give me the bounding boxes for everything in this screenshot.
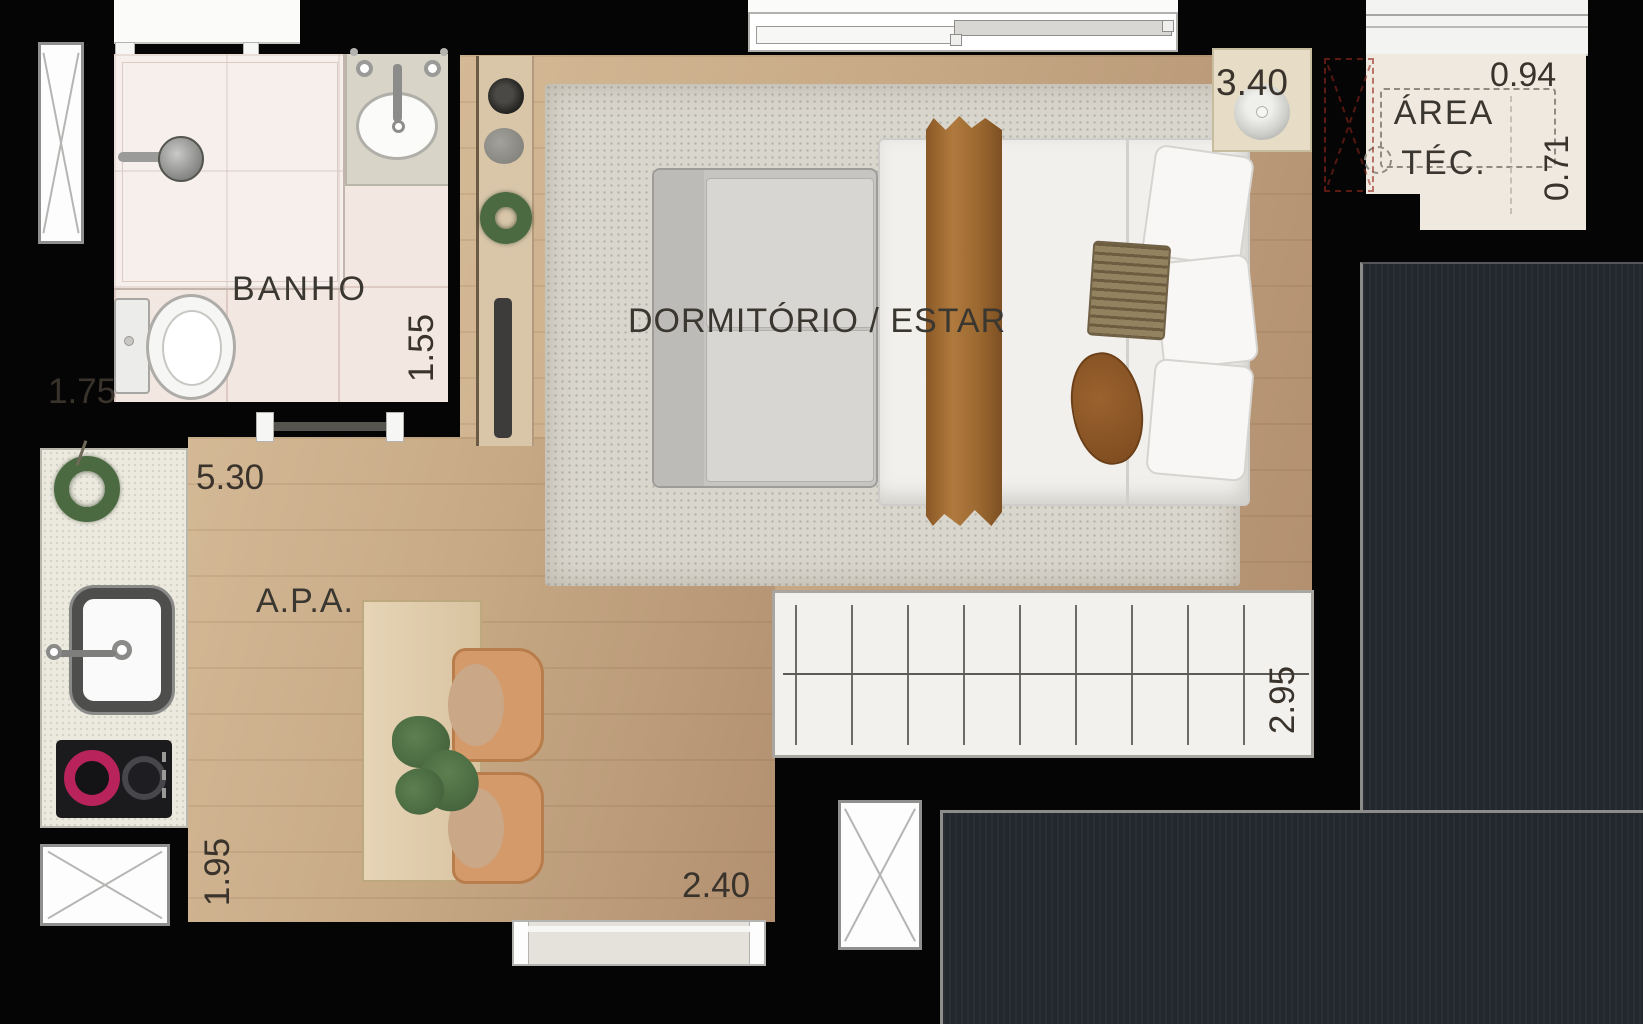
- dim-banho-depth: 1.55: [404, 288, 440, 408]
- room-label-apa: A.P.A.: [256, 584, 354, 618]
- dim-banho-width: 1.75: [48, 374, 116, 409]
- faucet-knob-right: [424, 60, 441, 77]
- room-label-area-tec-2: TÉC.: [1386, 146, 1502, 180]
- bench-center-rail: [783, 673, 1309, 675]
- sliding-window-pane-right: [954, 20, 1172, 36]
- decor-stone: [484, 128, 524, 164]
- balcony-door-rail: [528, 926, 750, 932]
- dim-apa-length: 5.30: [196, 460, 264, 495]
- bath-sliding-door-leaf: [274, 422, 386, 431]
- sink-faucet: [393, 64, 402, 122]
- dim-area-tec-depth: 0.71: [1540, 108, 1576, 228]
- cooktop-controls: [162, 788, 166, 798]
- faucet-dot: [440, 48, 448, 56]
- bench-slats: [795, 605, 1265, 745]
- area-tec-grid-line: [1510, 96, 1512, 214]
- room-label-dormitorio: DORMITÓRIO / ESTAR: [628, 304, 1006, 338]
- faucet-knob-left: [356, 60, 373, 77]
- window-rail-line: [1366, 14, 1588, 16]
- cooktop-burner: [122, 756, 166, 800]
- plant-wreath: [480, 192, 532, 244]
- dim-dining-width: 2.40: [682, 868, 750, 903]
- sofa-seat-cushion: [706, 330, 874, 482]
- kitchen-plant: [54, 456, 120, 522]
- dark-panel-bottom: [940, 810, 1643, 1024]
- bath-door-jamb-left: [256, 412, 274, 442]
- dining-chair-seat: [448, 664, 504, 746]
- shower-head: [158, 136, 204, 182]
- faucet-dot: [350, 48, 358, 56]
- dim-dormitorio-depth: 2.95: [1265, 640, 1301, 760]
- sliding-window-handle-2: [1162, 20, 1174, 32]
- room-label-banho: BANHO: [232, 272, 368, 306]
- toilet-tank: [114, 298, 150, 394]
- floor-plan: BANHO 1.75 1.55 DORMITÓRIO / ESTAR 3.40 …: [0, 0, 1643, 1024]
- area-tec-window: [1366, 0, 1588, 56]
- tv-panel: [494, 298, 512, 438]
- cooktop-controls: [162, 770, 166, 780]
- dim-area-tec-width: 0.94: [1490, 58, 1556, 92]
- shower-tray-line: [122, 62, 338, 282]
- window-left: [38, 42, 84, 244]
- kitchen-faucet-knob: [46, 644, 62, 660]
- wicker-cushion: [1087, 240, 1171, 340]
- window-rail-line: [1366, 26, 1588, 28]
- shaft-red-dashed: [1324, 58, 1374, 192]
- toilet-flush-button: [124, 336, 134, 346]
- balcony-door-post: [514, 922, 529, 964]
- bath-door-jamb-right: [386, 412, 404, 442]
- balcony-door-post: [749, 922, 764, 964]
- toilet-bowl-inner: [162, 310, 222, 386]
- cooktop-controls: [162, 752, 166, 762]
- balcony-door-bottom: [512, 920, 766, 966]
- cooktop-burner-active: [64, 750, 120, 806]
- bed-pillow: [1145, 358, 1255, 482]
- dim-apa-width: 1.95: [200, 812, 236, 932]
- entry-hall-exterior: [114, 0, 300, 44]
- dim-dormitorio-length: 3.40: [1216, 64, 1288, 101]
- room-label-area-tec-1: ÁREA: [1382, 96, 1506, 130]
- window-bottom-center: [838, 800, 922, 950]
- kitchen-sink-drain: [112, 640, 132, 660]
- sliding-window-top: [748, 12, 1178, 52]
- decor-bowl: [488, 78, 524, 114]
- sliding-window-pane-left: [756, 26, 960, 44]
- window-bottom-left: [40, 844, 170, 926]
- sliding-window-handle: [950, 34, 962, 46]
- table-lamp-center: [1256, 106, 1268, 118]
- slatted-bench: [772, 590, 1314, 758]
